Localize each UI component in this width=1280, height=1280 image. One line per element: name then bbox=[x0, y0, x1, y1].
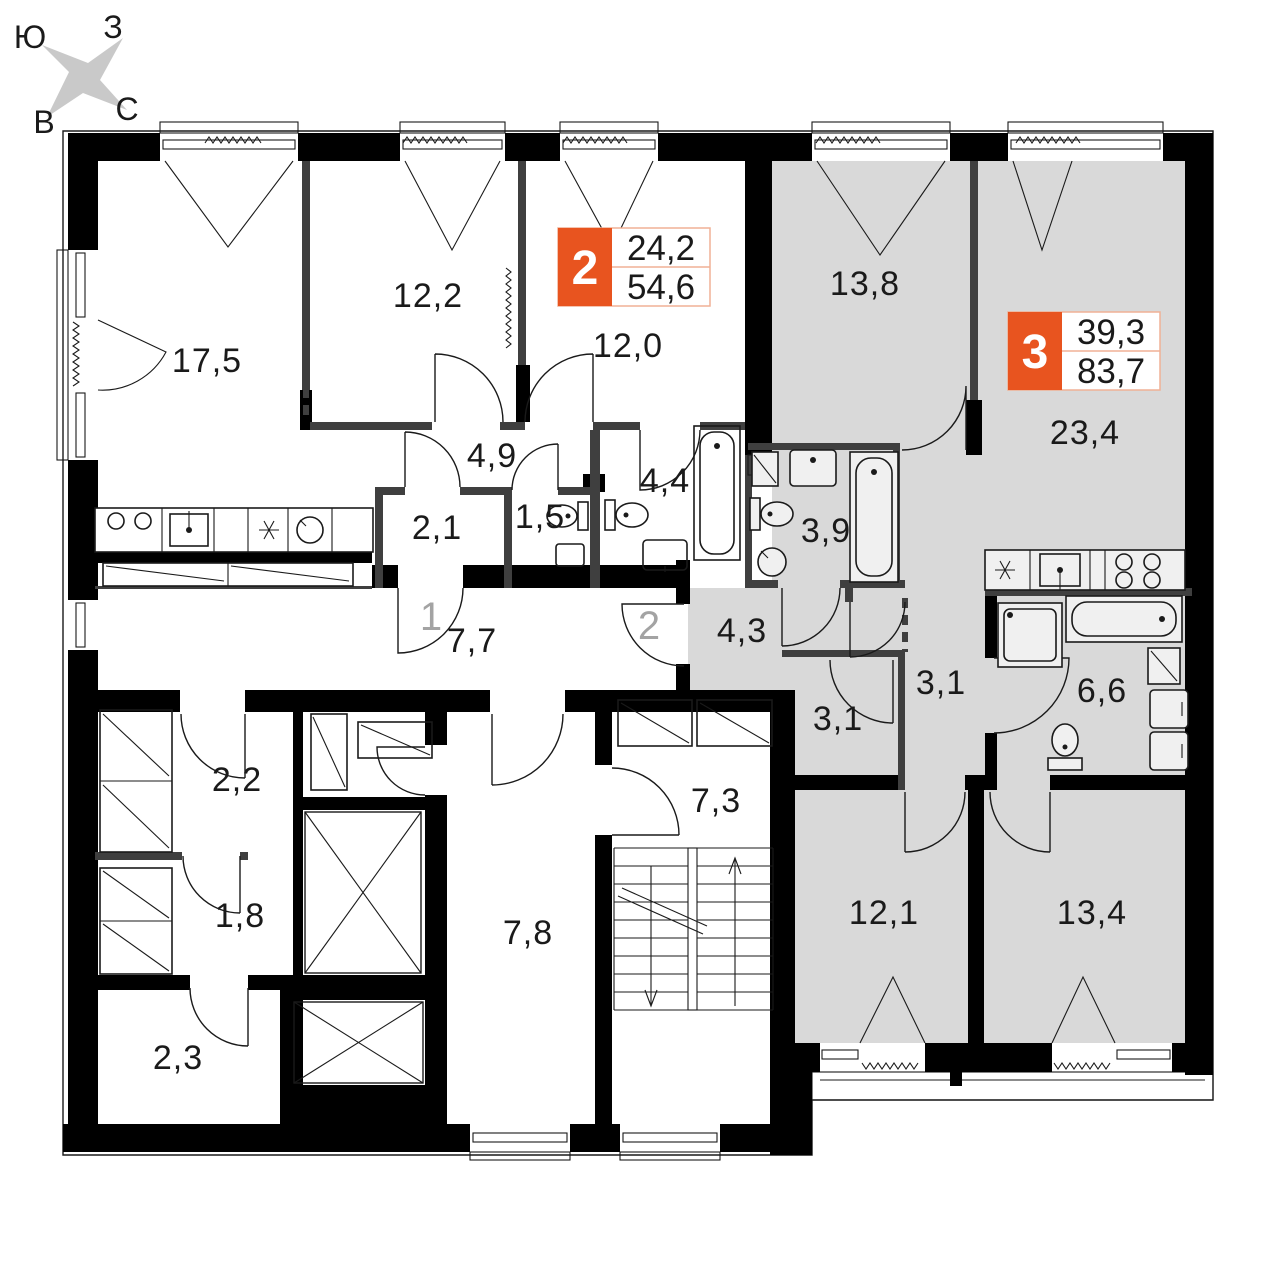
window bbox=[1117, 1050, 1170, 1059]
window bbox=[76, 393, 85, 457]
bathtub-icon bbox=[1066, 596, 1182, 642]
sink-icon bbox=[1150, 690, 1188, 728]
window bbox=[473, 1133, 567, 1142]
compass-star-icon bbox=[42, 38, 127, 117]
door bbox=[492, 714, 563, 785]
balcony-door bbox=[73, 320, 166, 390]
room-area-label: 23,4 bbox=[1050, 414, 1120, 452]
room-area-label: 3,1 bbox=[916, 664, 966, 702]
wardrobe-icon bbox=[100, 868, 172, 974]
window bbox=[822, 1050, 858, 1059]
room-area-label: 13,4 bbox=[1057, 894, 1127, 932]
window bbox=[163, 137, 295, 247]
kitchen-block bbox=[95, 508, 373, 552]
toilet-icon bbox=[605, 500, 648, 530]
room-area-label: 4,3 bbox=[717, 612, 767, 650]
apartment-rooms-area: 39,3 bbox=[1077, 313, 1145, 352]
compass-north: С bbox=[115, 91, 138, 127]
door bbox=[435, 354, 503, 422]
room-area-label: 6,6 bbox=[1077, 672, 1127, 710]
elevator-shaft bbox=[294, 1002, 423, 1083]
compass-rose: Ю З С В bbox=[14, 9, 139, 140]
wardrobe-icon bbox=[100, 710, 172, 852]
floor-plan-canvas: 17,5 12,2 12,0 4,9 2,1 1,5 4,4 7,7 13,8 … bbox=[0, 0, 1280, 1280]
stairs-up-arrow bbox=[729, 858, 741, 1006]
entrance-number: 1 bbox=[420, 595, 442, 639]
room-area-label: 4,9 bbox=[467, 437, 517, 475]
room-area-label: 2,1 bbox=[412, 509, 462, 547]
elevator-shaft bbox=[305, 812, 421, 973]
room-area-label: 2,2 bbox=[212, 761, 262, 799]
window bbox=[76, 253, 85, 317]
bathtub-icon bbox=[850, 452, 898, 582]
stairs-down-arrow bbox=[645, 866, 657, 1006]
room-area-label: 3,1 bbox=[813, 700, 863, 738]
shelf-icon bbox=[1148, 648, 1180, 684]
room-area-label: 12,0 bbox=[593, 327, 663, 365]
apartment-badge-2[interactable]: 2 24,2 54,6 bbox=[558, 228, 710, 307]
apartment-total-area: 83,7 bbox=[1077, 352, 1145, 391]
entrance-number: 2 bbox=[638, 604, 660, 648]
compass-south: Ю bbox=[14, 19, 46, 55]
shelf-icon bbox=[311, 714, 347, 790]
sink-icon bbox=[556, 544, 584, 566]
sink-icon bbox=[1150, 732, 1188, 770]
shelf-icon bbox=[752, 452, 778, 486]
room-area-label: 1,8 bbox=[215, 897, 265, 935]
wardrobe-icon bbox=[103, 563, 353, 586]
window bbox=[403, 137, 502, 250]
apartment-rooms-area: 24,2 bbox=[627, 229, 695, 268]
room-area-label: 7,3 bbox=[691, 782, 741, 820]
sink-icon bbox=[790, 450, 836, 486]
door bbox=[190, 988, 248, 1046]
shower-icon bbox=[998, 603, 1062, 667]
apartment-number: 3 bbox=[1022, 326, 1049, 379]
room-area-label: 3,9 bbox=[801, 512, 851, 550]
room-area-label: 12,1 bbox=[849, 894, 919, 932]
room-area-label: 17,5 bbox=[172, 342, 242, 380]
door bbox=[405, 432, 460, 487]
washer-icon bbox=[758, 548, 786, 576]
window bbox=[623, 1133, 717, 1142]
apartment-total-area: 54,6 bbox=[627, 268, 695, 307]
door bbox=[612, 768, 679, 835]
window bbox=[76, 603, 85, 647]
elevators bbox=[294, 812, 423, 1083]
room-area-label: 1,5 bbox=[515, 498, 565, 536]
room-area-label: 4,4 bbox=[640, 462, 690, 500]
apartment-number: 2 bbox=[572, 242, 599, 295]
apartment-badge-3[interactable]: 3 39,3 83,7 bbox=[1008, 312, 1160, 391]
door bbox=[512, 444, 558, 490]
room-area-label: 12,2 bbox=[393, 277, 463, 315]
floor-plan: 17,5 12,2 12,0 4,9 2,1 1,5 4,4 7,7 13,8 … bbox=[0, 0, 1280, 1280]
kitchen-block bbox=[985, 550, 1185, 590]
compass-west: З bbox=[103, 9, 122, 45]
compass-east: В bbox=[33, 104, 54, 140]
room-area-label: 7,8 bbox=[503, 914, 553, 952]
room-area-label: 2,3 bbox=[153, 1039, 203, 1077]
door bbox=[525, 354, 593, 422]
room-area-label: 7,7 bbox=[447, 622, 497, 660]
bathtub-icon bbox=[694, 426, 740, 560]
room-area-label: 13,8 bbox=[830, 265, 900, 303]
stairs bbox=[614, 848, 773, 1010]
door bbox=[377, 747, 425, 795]
shelf-icon bbox=[358, 722, 432, 758]
